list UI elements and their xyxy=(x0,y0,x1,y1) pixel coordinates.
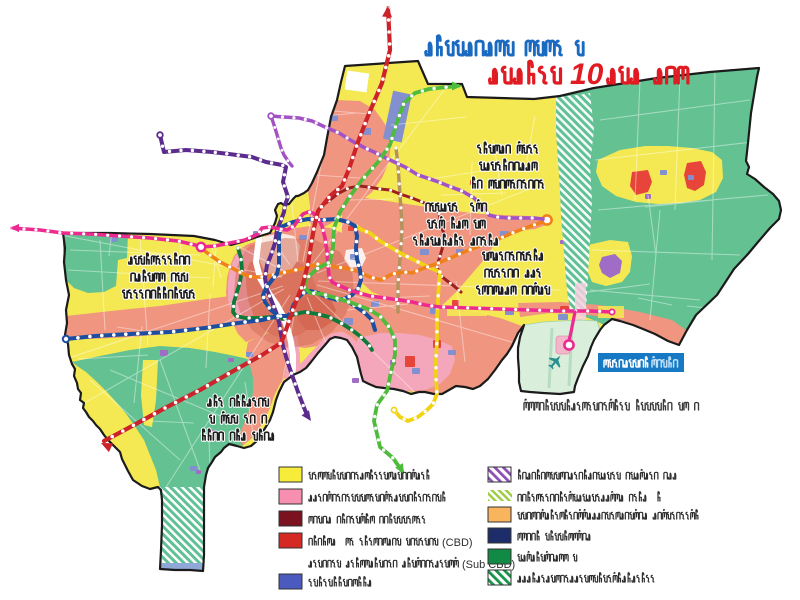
svg-text:(CBD): (CBD) xyxy=(442,537,473,549)
svg-text:10: 10 xyxy=(570,58,604,91)
